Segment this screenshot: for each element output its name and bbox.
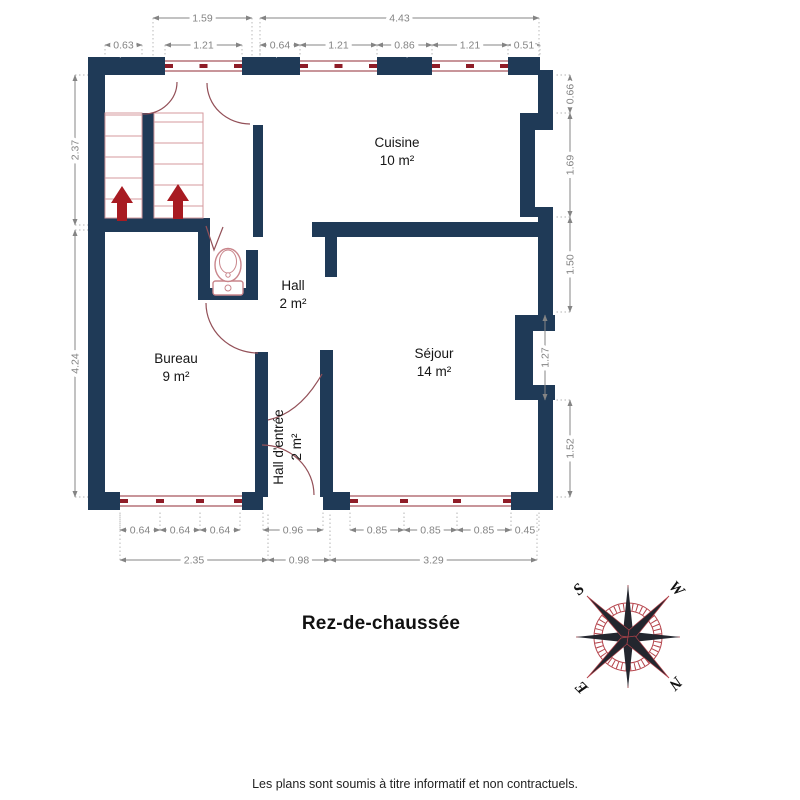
window-mullion-tick bbox=[196, 499, 204, 503]
dimension-label: 0.85 bbox=[474, 525, 495, 537]
wall-segment bbox=[312, 222, 553, 237]
window-mullion-tick bbox=[350, 499, 358, 503]
dimension-label: 0.45 bbox=[515, 525, 536, 537]
window-mullion-tick bbox=[234, 499, 242, 503]
dimension-label: 0.64 bbox=[210, 525, 231, 537]
window-mullion-tick bbox=[120, 499, 128, 503]
window-mullion-tick bbox=[165, 64, 173, 68]
dimension-label: 1.21 bbox=[193, 40, 214, 52]
dimension-label: 1.50 bbox=[565, 254, 577, 275]
wall-segment bbox=[242, 57, 300, 75]
room-area-label: 9 m² bbox=[163, 369, 191, 384]
wall-segment bbox=[538, 70, 553, 113]
dimension-label: 0.64 bbox=[170, 525, 191, 537]
window-mullion-tick bbox=[466, 64, 474, 68]
dimension-label: 2.37 bbox=[70, 140, 82, 161]
window-mullion-tick bbox=[400, 499, 408, 503]
dimension-label: 1.21 bbox=[328, 40, 349, 52]
wall-segment bbox=[88, 57, 105, 510]
dimension-label: 0.66 bbox=[565, 84, 577, 105]
floor-plan-page: { "plan": { "title": "Rez-de-chaussée", … bbox=[0, 0, 800, 800]
room-label: Cuisine bbox=[374, 135, 419, 150]
dimension-label: 0.96 bbox=[283, 525, 304, 537]
door-arc bbox=[262, 445, 314, 495]
dimension-label: 1.21 bbox=[460, 40, 481, 52]
compass-letter-s: S bbox=[570, 580, 588, 599]
door-arc bbox=[143, 82, 177, 114]
room-label: Séjour bbox=[414, 346, 454, 361]
wall-segment bbox=[377, 57, 432, 75]
window-mullion-tick bbox=[369, 64, 377, 68]
compass-letter-e: E bbox=[572, 677, 592, 697]
wall-segment bbox=[88, 218, 198, 232]
dimension-label: 2.35 bbox=[184, 555, 205, 567]
wall-segment bbox=[508, 57, 540, 75]
window-mullion-tick bbox=[432, 64, 440, 68]
compass-letter-w: W bbox=[665, 578, 688, 601]
wall-segment bbox=[88, 492, 120, 510]
wall-segment bbox=[246, 250, 258, 300]
room-area-label: 14 m² bbox=[417, 364, 452, 379]
up-arrow-icon bbox=[167, 184, 189, 219]
dimension-label: 0.86 bbox=[394, 40, 415, 52]
wall-segment bbox=[255, 352, 268, 497]
page-title: Rez-de-chaussée bbox=[0, 613, 762, 635]
wall-segment bbox=[515, 385, 555, 400]
dimension-label: 0.64 bbox=[130, 525, 151, 537]
window-mullion-tick bbox=[156, 499, 164, 503]
dimension-label: 4.24 bbox=[70, 353, 82, 374]
room-area-label: 2 m² bbox=[280, 296, 308, 311]
dimension-label: 0.85 bbox=[420, 525, 441, 537]
wall-segment bbox=[325, 222, 337, 277]
disclaimer-text: Les plans sont soumis à titre informatif… bbox=[30, 777, 800, 791]
up-arrow-icon bbox=[111, 186, 133, 221]
window-mullion-tick bbox=[200, 64, 208, 68]
wall-segment bbox=[520, 113, 535, 217]
window-mullion-tick bbox=[300, 64, 308, 68]
dimension-label: 4.43 bbox=[389, 13, 410, 25]
room-area-label: 2 m² bbox=[289, 433, 304, 461]
window-mullion-tick bbox=[453, 499, 461, 503]
wall-segment bbox=[142, 113, 154, 218]
wall-segment bbox=[198, 218, 210, 300]
wall-segment bbox=[320, 350, 333, 497]
dimension-label: 0.51 bbox=[514, 40, 535, 52]
floor-plan-svg: 1.594.430.631.210.641.210.861.210.510.64… bbox=[0, 0, 800, 800]
wall-segment bbox=[538, 400, 553, 510]
dimension-label: 1.69 bbox=[565, 155, 577, 176]
wall-segment bbox=[253, 125, 263, 237]
dimension-label: 1.59 bbox=[192, 13, 213, 25]
dimension-label: 3.29 bbox=[423, 555, 444, 567]
dimension-label: 0.98 bbox=[289, 555, 310, 567]
dimension-label: 1.27 bbox=[540, 347, 552, 368]
toilet-icon bbox=[213, 249, 243, 296]
room-label: Hall d'entrée bbox=[271, 409, 286, 484]
dimension-label: 0.85 bbox=[367, 525, 388, 537]
room-label: Bureau bbox=[154, 351, 198, 366]
window-mullion-tick bbox=[335, 64, 343, 68]
door-arc bbox=[207, 83, 250, 124]
compass-points bbox=[576, 585, 680, 688]
dimension-label: 0.64 bbox=[270, 40, 291, 52]
door-arc bbox=[206, 303, 258, 353]
window-mullion-tick bbox=[503, 499, 511, 503]
compass-rose-icon bbox=[576, 585, 680, 688]
room-area-label: 10 m² bbox=[380, 153, 415, 168]
dimension-label: 1.52 bbox=[565, 438, 577, 459]
window-mullion-tick bbox=[234, 64, 242, 68]
walls bbox=[88, 57, 555, 510]
dimension-label: 0.63 bbox=[113, 40, 134, 52]
window-mullion-tick bbox=[500, 64, 508, 68]
room-label: Hall bbox=[281, 278, 304, 293]
